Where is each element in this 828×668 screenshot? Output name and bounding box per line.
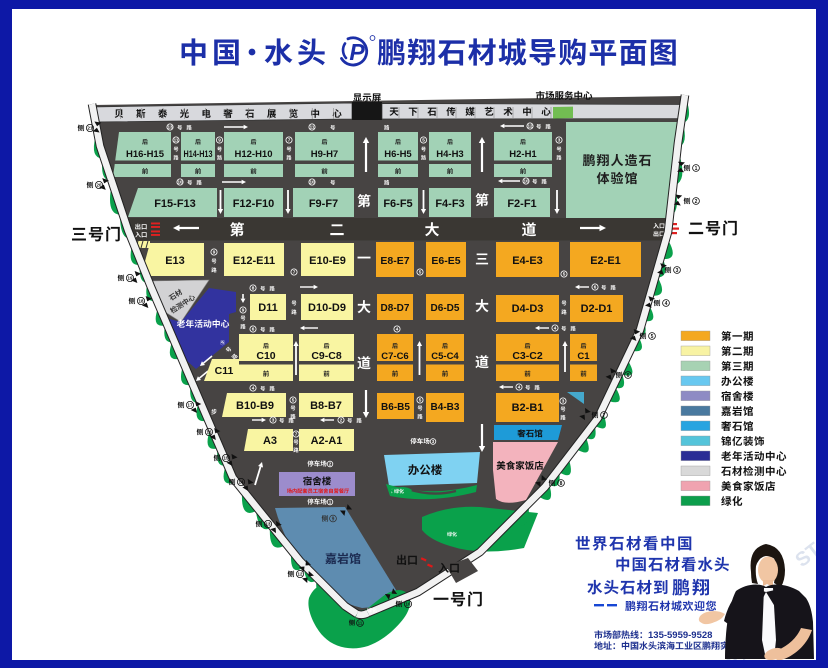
svg-text:B4-B3: B4-B3 <box>431 402 460 413</box>
svg-text:5: 5 <box>422 138 425 143</box>
svg-text:D8-D7: D8-D7 <box>381 303 410 314</box>
svg-text:9: 9 <box>332 516 335 522</box>
svg-text:4: 4 <box>554 326 557 331</box>
svg-text:5: 5 <box>419 270 422 275</box>
svg-text:E12-E11: E12-E11 <box>233 255 275 267</box>
svg-text:10: 10 <box>523 179 529 184</box>
svg-text:E6-E5: E6-E5 <box>431 255 460 267</box>
svg-text:9: 9 <box>242 308 245 313</box>
svg-text:8: 8 <box>560 481 563 487</box>
svg-text:D11: D11 <box>258 302 278 314</box>
svg-text:E10-E9: E10-E9 <box>309 255 346 267</box>
svg-text:F6-F5: F6-F5 <box>383 198 412 210</box>
svg-text:16: 16 <box>207 430 212 435</box>
svg-text:4: 4 <box>518 385 521 390</box>
svg-text:21: 21 <box>88 126 93 131</box>
svg-text:C9-C8: C9-C8 <box>311 350 342 362</box>
svg-text:5: 5 <box>563 272 566 277</box>
svg-text:10: 10 <box>406 602 411 607</box>
svg-text:H6-H5: H6-H5 <box>384 149 412 160</box>
svg-text:13: 13 <box>167 125 173 130</box>
svg-text:3: 3 <box>272 418 275 423</box>
svg-text:11: 11 <box>310 125 315 130</box>
svg-text:12: 12 <box>527 124 533 129</box>
svg-text:1: 1 <box>695 166 698 172</box>
svg-text:A2-A1: A2-A1 <box>311 435 343 447</box>
svg-text:3: 3 <box>558 138 561 143</box>
svg-text:A3: A3 <box>263 435 277 447</box>
svg-text:E2-E1: E2-E1 <box>590 255 621 267</box>
svg-text:8: 8 <box>252 286 255 291</box>
svg-text:5: 5 <box>419 398 422 403</box>
svg-text:3: 3 <box>562 399 565 404</box>
svg-text:F15-F13: F15-F13 <box>154 198 196 210</box>
svg-text:C7-C6: C7-C6 <box>381 351 408 362</box>
svg-text:H9-H7: H9-H7 <box>311 149 338 160</box>
svg-text:D10-D9: D10-D9 <box>308 302 346 314</box>
svg-text:P: P <box>349 39 365 65</box>
svg-text:F12-F10: F12-F10 <box>233 198 275 210</box>
svg-text:F2-F1: F2-F1 <box>507 198 536 210</box>
svg-text:9: 9 <box>218 138 221 143</box>
svg-text:B6-B5: B6-B5 <box>381 402 410 413</box>
svg-text:10: 10 <box>309 180 315 185</box>
svg-text:H12-H10: H12-H10 <box>234 149 272 160</box>
svg-text:C11: C11 <box>215 365 234 377</box>
svg-text:H2-H1: H2-H1 <box>509 149 537 160</box>
svg-text:11: 11 <box>174 138 179 143</box>
svg-text:7: 7 <box>293 270 296 275</box>
svg-text:11: 11 <box>358 621 363 626</box>
svg-text:3: 3 <box>676 268 679 274</box>
svg-text:B8-B7: B8-B7 <box>310 400 342 412</box>
svg-text:10: 10 <box>177 180 183 185</box>
svg-text:C3-C2: C3-C2 <box>512 350 543 362</box>
svg-text:6: 6 <box>627 373 630 379</box>
svg-text:D4-D3: D4-D3 <box>512 303 544 315</box>
svg-text:5: 5 <box>651 334 654 340</box>
svg-text:6: 6 <box>252 327 255 332</box>
svg-text:H14-H13: H14-H13 <box>184 149 213 160</box>
svg-text:D6-D5: D6-D5 <box>431 303 460 314</box>
svg-text:12: 12 <box>298 572 303 577</box>
svg-text:14: 14 <box>239 480 244 485</box>
svg-text:H4-H3: H4-H3 <box>436 149 463 160</box>
svg-text:F4-F3: F4-F3 <box>435 198 464 210</box>
svg-text:7: 7 <box>288 138 291 143</box>
svg-text:E13: E13 <box>165 255 185 267</box>
svg-text:D2-D1: D2-D1 <box>581 303 613 315</box>
svg-text:C5-C4: C5-C4 <box>431 351 459 362</box>
svg-text:H16-H15: H16-H15 <box>126 149 165 160</box>
svg-text:E4-E3: E4-E3 <box>512 255 543 267</box>
svg-text:2: 2 <box>695 199 698 205</box>
svg-text:9: 9 <box>213 250 216 255</box>
svg-text:6: 6 <box>594 285 597 290</box>
svg-text:B2-B1: B2-B1 <box>512 402 544 414</box>
svg-text:135-5959-9528: 135-5959-9528 <box>648 630 712 641</box>
svg-text:5: 5 <box>292 398 295 403</box>
svg-text:F9-F7: F9-F7 <box>309 198 338 210</box>
svg-text:C10: C10 <box>256 350 275 362</box>
svg-text:18: 18 <box>139 299 144 304</box>
svg-text:4: 4 <box>252 386 255 391</box>
svg-text:4: 4 <box>396 327 399 332</box>
svg-text:7: 7 <box>295 432 298 437</box>
svg-text:7: 7 <box>603 413 606 419</box>
svg-text:E8-E7: E8-E7 <box>380 255 409 267</box>
svg-text:2: 2 <box>340 418 343 423</box>
svg-text:15: 15 <box>224 456 229 461</box>
svg-text:17: 17 <box>188 403 193 408</box>
svg-text:13: 13 <box>266 522 271 527</box>
svg-text:B10-B9: B10-B9 <box>236 400 274 412</box>
svg-text:C1: C1 <box>577 351 590 362</box>
svg-text:4: 4 <box>665 301 668 307</box>
